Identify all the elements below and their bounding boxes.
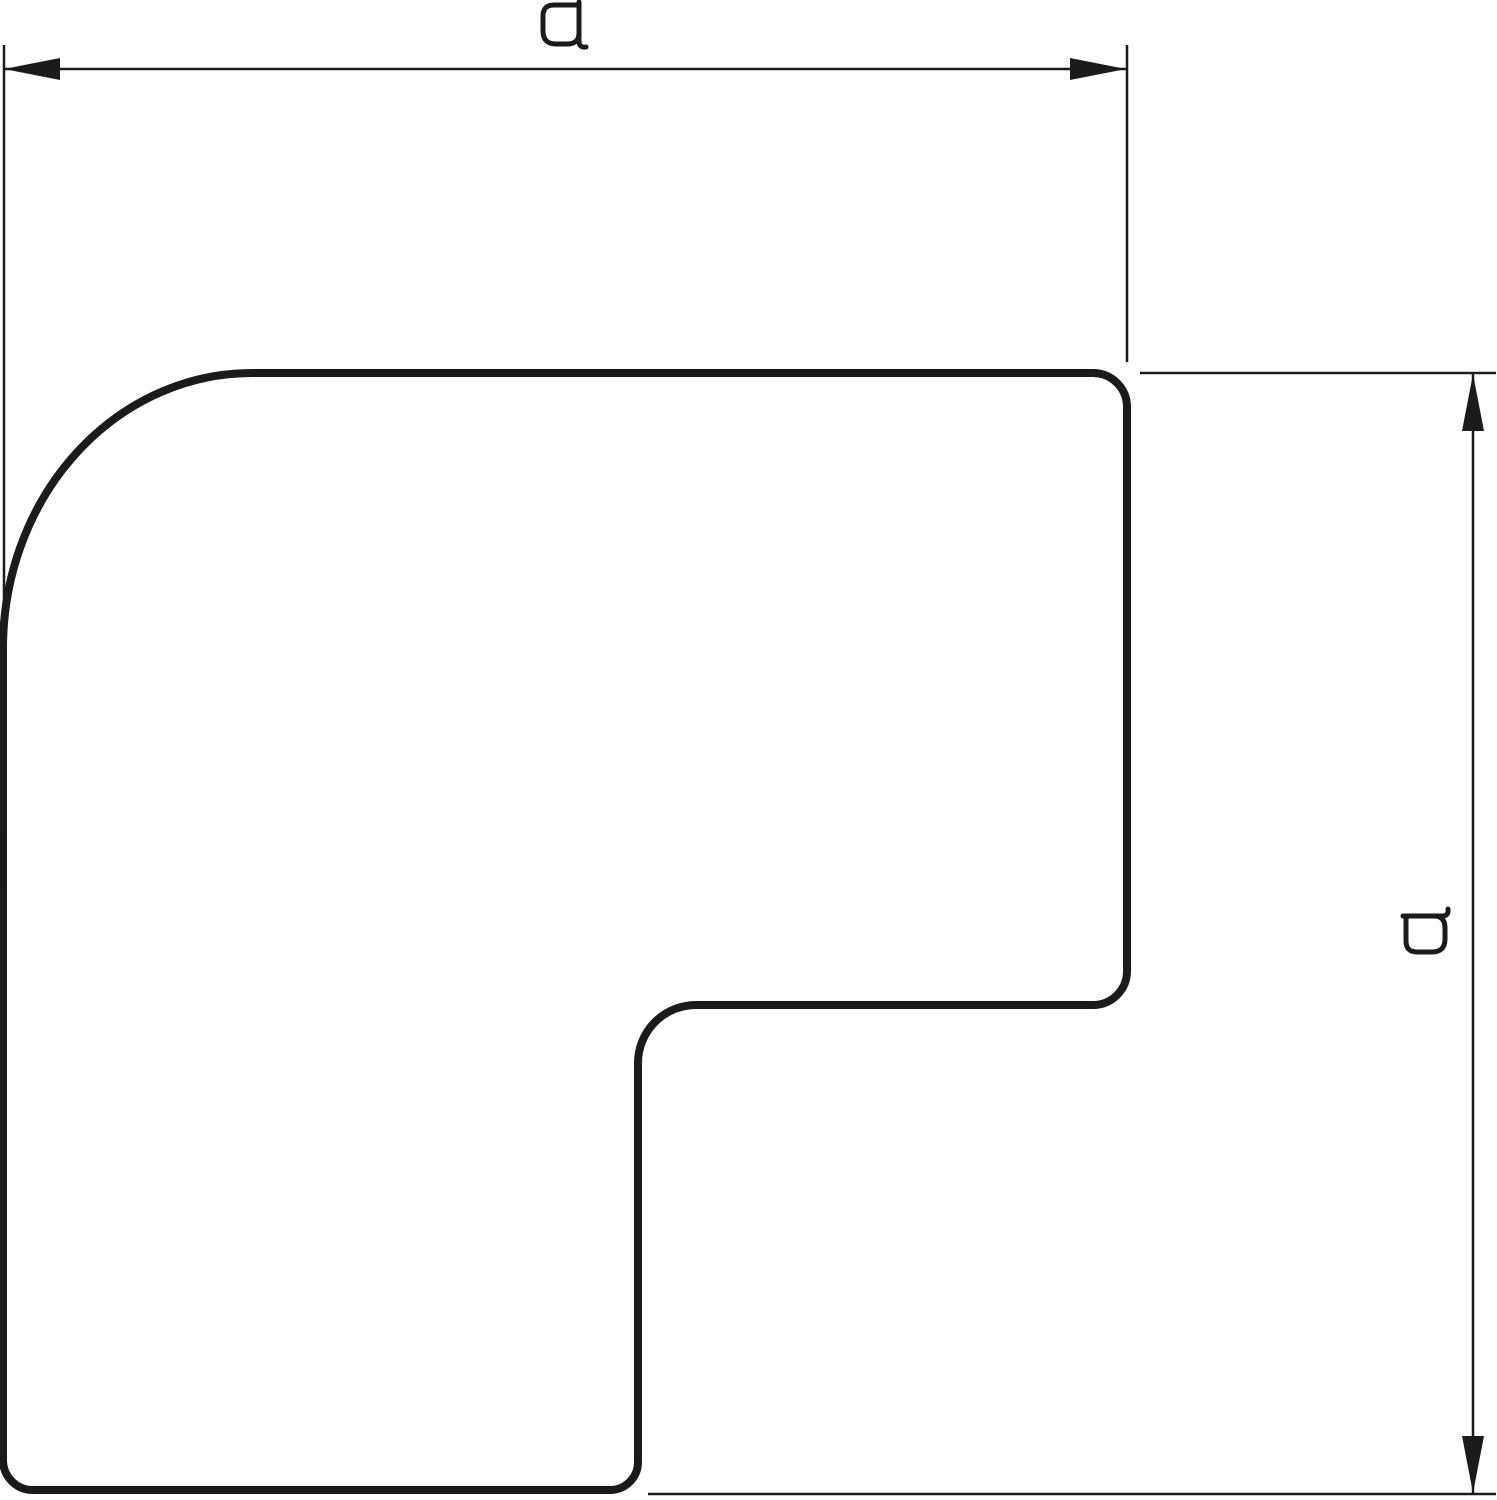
dimension-label-horizontal (543, 2, 586, 47)
dimension-arrow-up (1462, 374, 1484, 431)
letter-a-glyph (543, 2, 586, 47)
part-outline-group (3, 373, 1127, 1490)
technical-drawing-canvas: a a (0, 0, 1497, 1500)
dimension-label-vertical (1403, 909, 1448, 952)
dimension-arrow-right (1070, 58, 1126, 80)
dimension-arrow-down (1462, 1436, 1484, 1493)
letter-a-glyph-rotated (1403, 909, 1448, 952)
vertical-dimension (648, 373, 1496, 1494)
dimension-drawing (0, 0, 1497, 1500)
dimension-arrow-left (4, 58, 60, 80)
part-outline (3, 373, 1127, 1490)
horizontal-dimension (4, 2, 1127, 650)
